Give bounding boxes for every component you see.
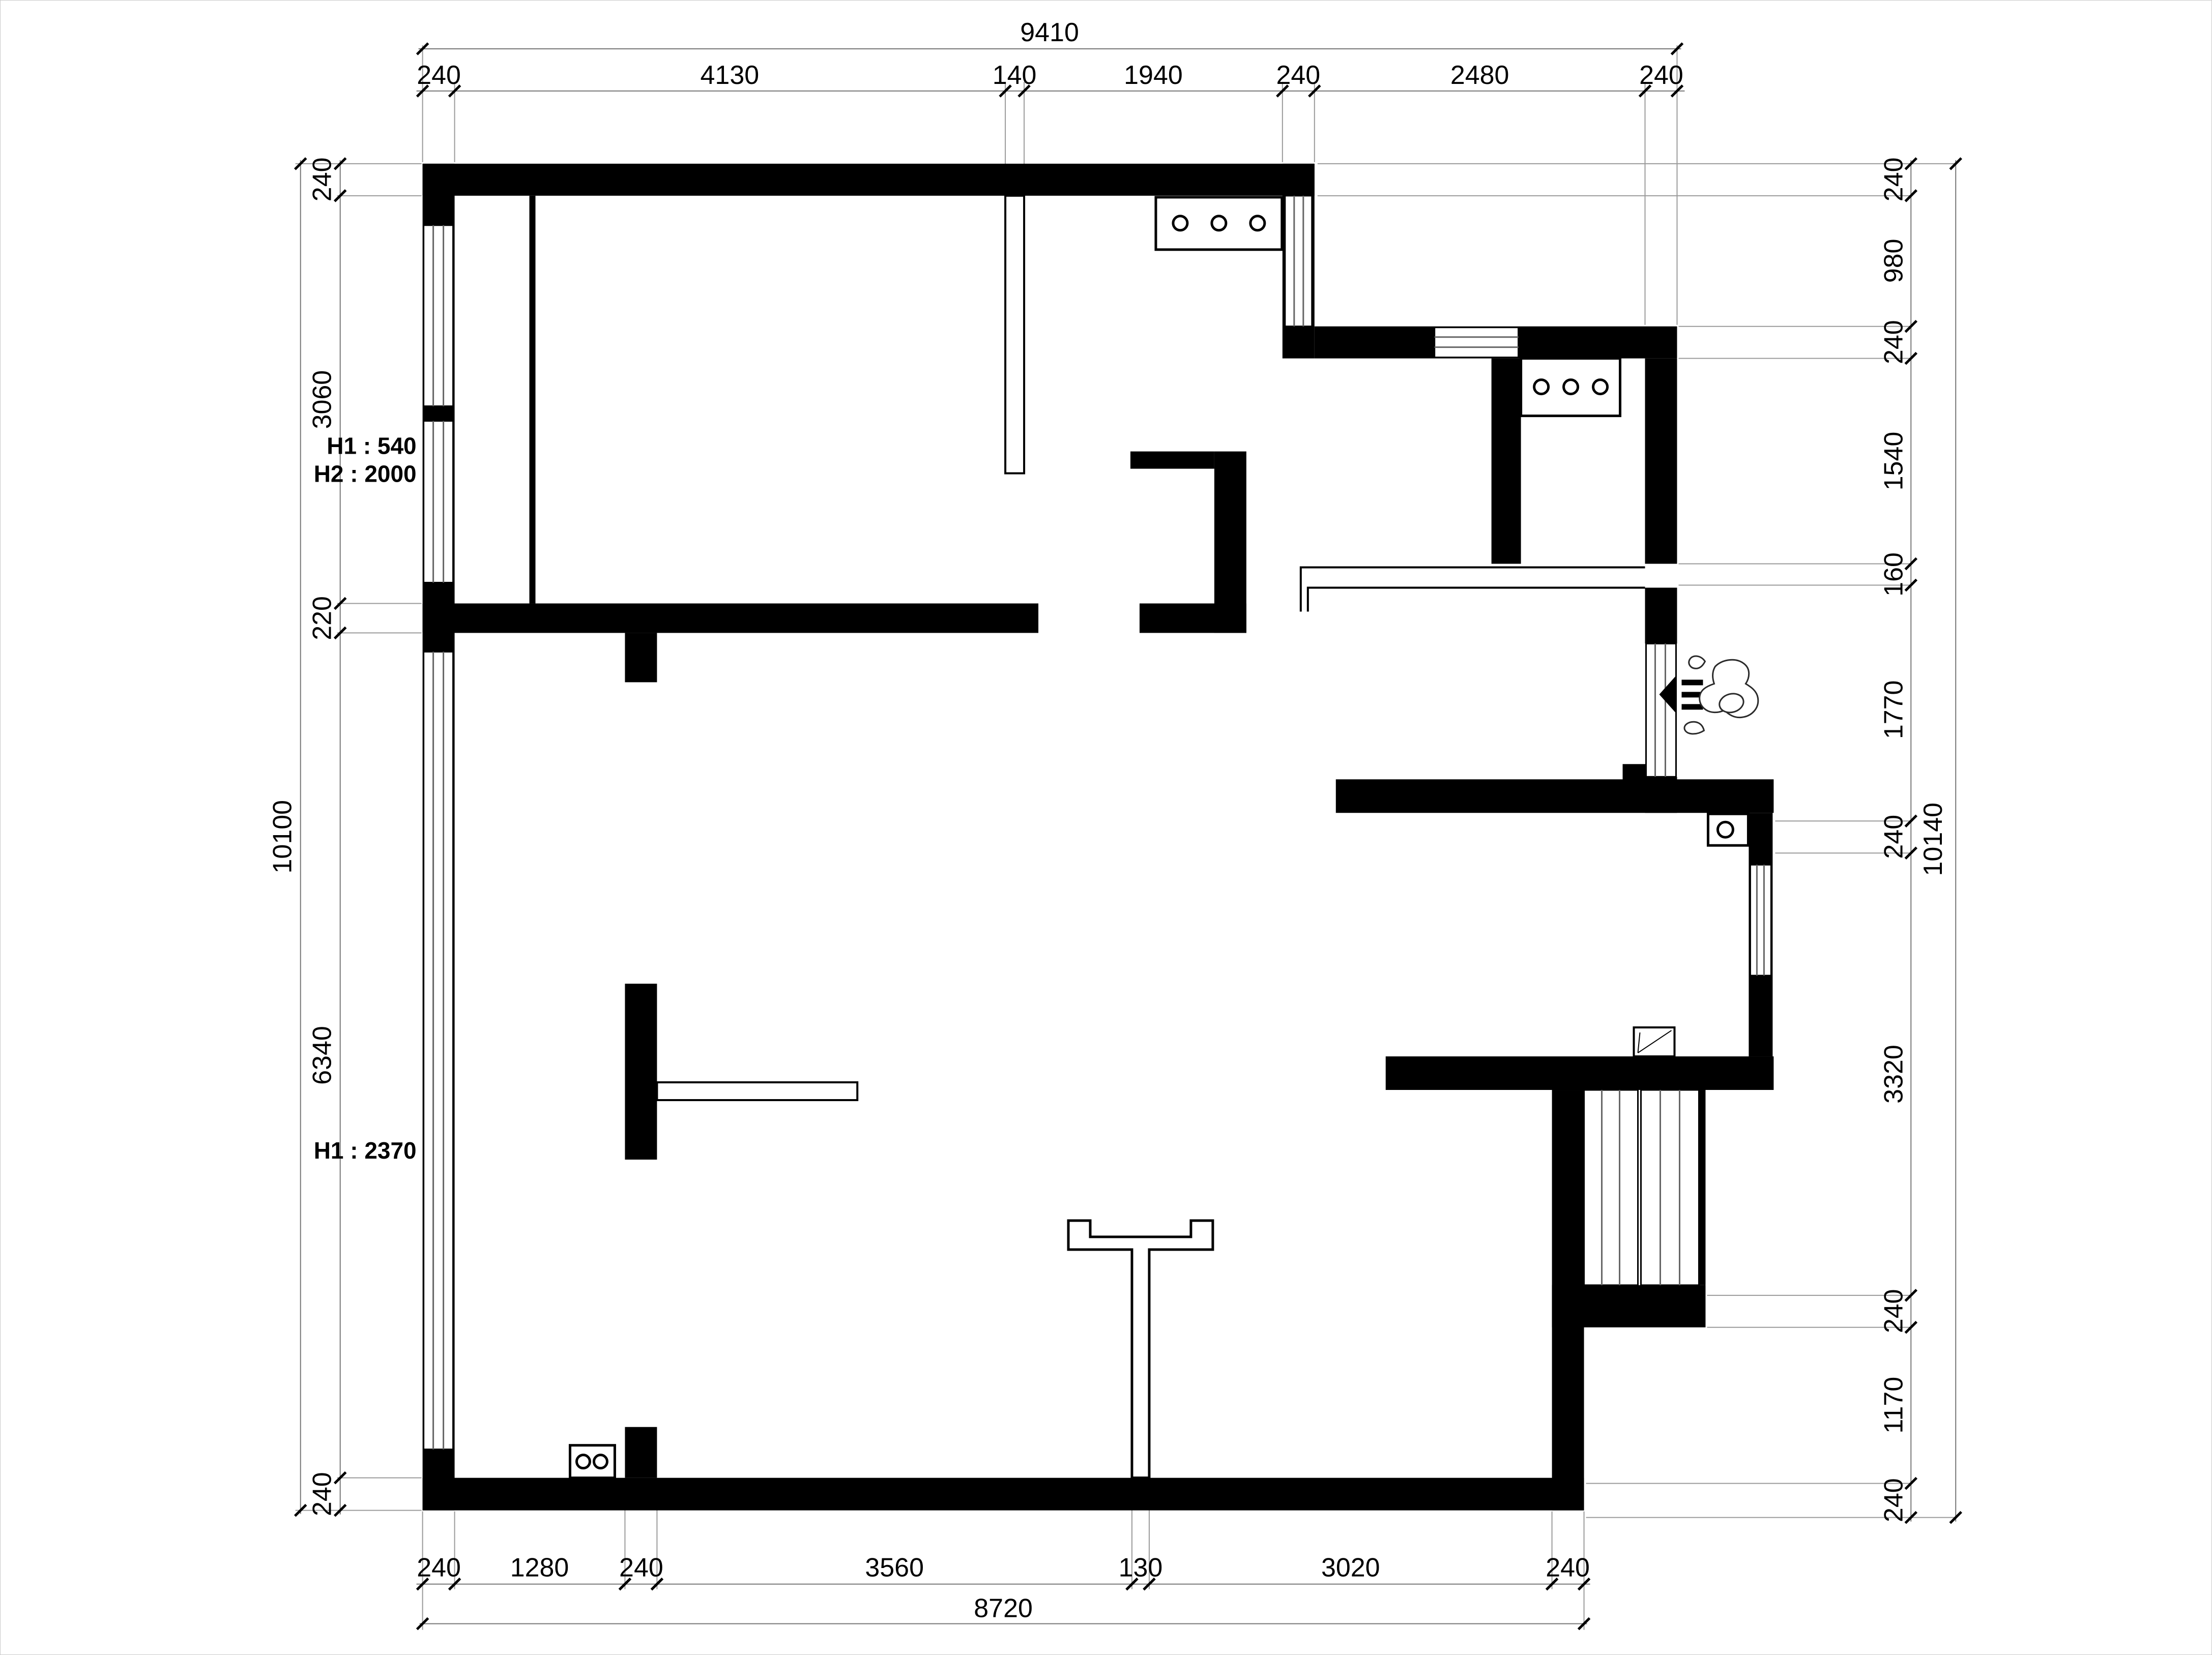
wall-kitchen-vertical bbox=[1214, 452, 1246, 633]
dim-right-seg-4: 160 bbox=[1879, 552, 1908, 597]
window-bay bbox=[1750, 865, 1771, 976]
dim-top-seg-5: 2480 bbox=[1450, 61, 1509, 90]
dim-top-seg-2: 140 bbox=[993, 61, 1037, 90]
dim-top-seg-1: 4130 bbox=[701, 61, 760, 90]
dim-right-seg-2: 240 bbox=[1879, 320, 1908, 364]
dim-bottom-seg-0: 240 bbox=[417, 1553, 461, 1583]
dim-right-total: 10140 bbox=[1918, 803, 1948, 876]
drawing-sheet: 240 4130 140 1940 240 2480 240 9410 240 … bbox=[0, 0, 2212, 1655]
dim-bottom-seg-6: 240 bbox=[1546, 1553, 1590, 1583]
dim-bottom-seg-1: 1280 bbox=[510, 1553, 569, 1583]
t-column bbox=[1068, 1221, 1213, 1478]
dim-left-seg-0: 240 bbox=[308, 157, 337, 201]
dimension-text: 240 4130 140 1940 240 2480 240 9410 240 … bbox=[268, 18, 1948, 1623]
note-lower-window-h1: H1 : 2370 bbox=[314, 1137, 417, 1164]
dim-left-seg-4: 240 bbox=[308, 1472, 337, 1516]
dim-bottom-seg-4: 130 bbox=[1119, 1553, 1163, 1583]
dim-bottom-seg-5: 3020 bbox=[1321, 1553, 1380, 1583]
window-balcony-right bbox=[1641, 1090, 1699, 1285]
dim-bottom-seg-2: 240 bbox=[619, 1553, 663, 1583]
cooktop-icon bbox=[1156, 197, 1282, 250]
cooktop2-icon bbox=[1521, 359, 1620, 416]
wall-stub-a bbox=[625, 633, 657, 682]
radiator-icon bbox=[570, 1445, 615, 1478]
dim-right-seg-0: 240 bbox=[1879, 157, 1908, 201]
dim-left-total: 10100 bbox=[268, 800, 298, 874]
wall-bedroom-south bbox=[423, 603, 1038, 633]
dim-right-seg-5: 1770 bbox=[1879, 681, 1908, 740]
shelf bbox=[657, 1082, 857, 1100]
wall-bay-bottom bbox=[1386, 1056, 1774, 1090]
dim-right-seg-8: 240 bbox=[1879, 1289, 1908, 1333]
dim-bottom-seg-3: 3560 bbox=[865, 1553, 924, 1583]
partition-140 bbox=[1005, 196, 1024, 474]
wall-stub-b bbox=[625, 984, 657, 1160]
wall-kitchen-horizontal bbox=[1130, 452, 1214, 469]
wall-stub-c bbox=[625, 1427, 657, 1478]
window-left-lower bbox=[424, 652, 453, 1449]
window-left-upper-2 bbox=[424, 421, 453, 583]
dim-right-seg-3: 1540 bbox=[1879, 432, 1908, 491]
window-balcony-left bbox=[1584, 1090, 1638, 1285]
window-corner-column bbox=[1285, 196, 1312, 327]
wall-bottom bbox=[423, 1478, 1584, 1511]
wall-top bbox=[423, 164, 1315, 196]
closet-edge bbox=[530, 196, 536, 604]
note-upper-window-h2: H2 : 2000 bbox=[314, 461, 417, 487]
counter-ledge bbox=[1301, 567, 1645, 611]
dim-left-seg-3: 6340 bbox=[308, 1026, 337, 1085]
extension-lines bbox=[296, 45, 1956, 1630]
dim-bottom-total: 8720 bbox=[974, 1594, 1033, 1623]
dim-right-seg-1: 980 bbox=[1879, 239, 1908, 283]
floor-plan-svg: 240 4130 140 1940 240 2480 240 9410 240 … bbox=[1, 1, 2211, 1654]
dim-right-seg-9: 1170 bbox=[1879, 1377, 1908, 1434]
washer-icon bbox=[1708, 814, 1748, 845]
wall-right-upper bbox=[1645, 359, 1677, 564]
dim-right-seg-7: 3320 bbox=[1879, 1045, 1908, 1104]
dim-top-total: 9410 bbox=[1020, 18, 1079, 47]
dim-top-seg-6: 240 bbox=[1639, 61, 1683, 90]
wall-nub bbox=[1623, 764, 1648, 780]
window-sill-icon bbox=[1634, 1027, 1675, 1056]
wall-balcony-jamb bbox=[1699, 1090, 1705, 1285]
dim-left-seg-1: 3060 bbox=[308, 370, 337, 429]
wall-stove-pier bbox=[1492, 359, 1521, 564]
note-upper-window-h1: H1 : 540 bbox=[327, 433, 416, 459]
dim-right-seg-10: 240 bbox=[1879, 1478, 1908, 1522]
wall-entry-south bbox=[1336, 779, 1774, 813]
window-left-upper-1 bbox=[424, 225, 453, 406]
entry-door bbox=[1646, 643, 1676, 777]
dim-top-seg-4: 240 bbox=[1276, 61, 1320, 90]
wall-right-mid bbox=[1645, 587, 1677, 643]
dim-top-seg-0: 240 bbox=[417, 61, 461, 90]
wall-step-bottom-right bbox=[1552, 1285, 1706, 1327]
window-step-wall bbox=[1435, 328, 1519, 358]
dim-left-seg-2: 220 bbox=[308, 596, 337, 640]
dim-top-seg-3: 1940 bbox=[1124, 61, 1183, 90]
dim-right-seg-6: 240 bbox=[1879, 815, 1908, 859]
